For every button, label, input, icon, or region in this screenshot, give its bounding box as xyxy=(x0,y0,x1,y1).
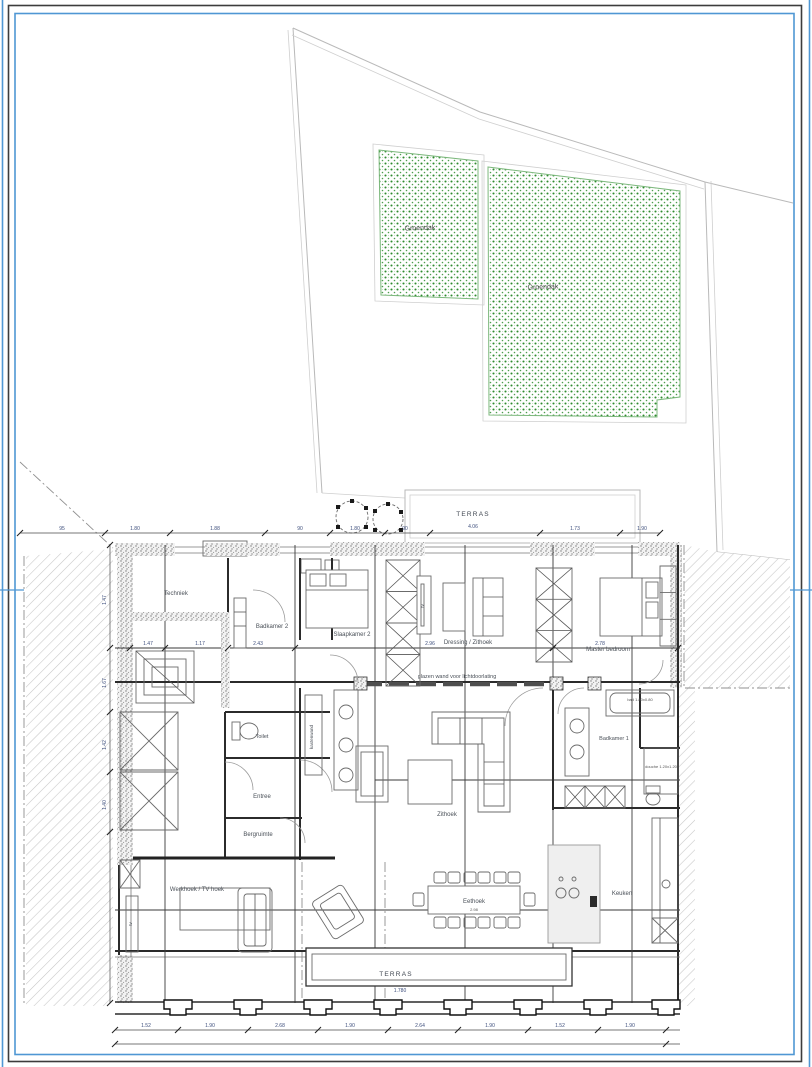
toilet-wc xyxy=(232,722,258,740)
stair-wall xyxy=(221,612,230,708)
terrace-top-outline xyxy=(405,490,640,543)
stairs xyxy=(136,651,194,703)
bath-dim-label: bad 1.80x0.80 xyxy=(627,697,653,702)
dim-bottom: 1.52 xyxy=(555,1023,565,1029)
glass-wall-label: glazen wand voor lichtdoorlating xyxy=(418,674,497,680)
dim-left: 1.42 xyxy=(102,740,108,750)
floor-plan-drawing: Groendak Groendak TERRAS 4.06 xyxy=(0,0,812,1067)
column xyxy=(354,677,367,690)
tv-label: tv xyxy=(128,922,133,926)
terrace-bottom-dim: 1.780 xyxy=(394,988,407,994)
dim-middle: 1.17 xyxy=(195,641,205,647)
green-roof-small-label: Groendak xyxy=(404,224,435,232)
vanity-badkamer1 xyxy=(565,708,589,776)
room-label-entree: Entree xyxy=(253,794,271,800)
dim-middle: 2.43 xyxy=(253,641,263,647)
skylight-dome-icon xyxy=(373,504,403,534)
room-label-keuken: Keuken xyxy=(612,891,632,897)
hatch-right-upper xyxy=(684,545,790,688)
column xyxy=(550,677,563,690)
wall-segment xyxy=(530,542,595,556)
drawing-page: Groendak Groendak TERRAS 4.06 xyxy=(0,0,812,1067)
skylight-studs xyxy=(336,499,403,532)
wall-segment xyxy=(205,543,280,556)
tv-cabinet-dressing: tv xyxy=(417,576,431,634)
wardrobe-column xyxy=(386,560,420,686)
dim-top: 90 xyxy=(297,526,303,532)
dim-bottom: 2.64 xyxy=(415,1023,425,1029)
radiator xyxy=(234,598,246,648)
chaise-sofa xyxy=(473,578,503,636)
room-label-dressing: Dressing / Zithoek xyxy=(444,640,493,646)
dressing-table xyxy=(443,583,465,631)
eethoek-dim: 2.98 xyxy=(470,907,479,912)
stair-wall xyxy=(120,612,230,621)
furniture-werkhoek: tv xyxy=(120,860,365,952)
eethoek-label: Eethoek xyxy=(463,899,486,905)
dim-top: 1.73 xyxy=(570,526,580,532)
room-label-toilet: Toilet xyxy=(256,734,269,740)
dim-top: 1.80 xyxy=(350,526,360,532)
sofa-werkhoek xyxy=(238,888,272,952)
wall-segment xyxy=(117,955,133,1003)
dim-left: 1.47 xyxy=(102,595,108,605)
kitchen-counter xyxy=(652,818,678,943)
hatch-right-wall xyxy=(678,688,695,1006)
bed-slaapkamer2 xyxy=(306,570,368,628)
dim-bottom: 1.90 xyxy=(205,1023,215,1029)
shower-dim-label: douche 1.20x1.20 xyxy=(645,764,678,769)
dim-bottom: 1.52 xyxy=(141,1023,151,1029)
furniture-living: Eethoek 2.98 xyxy=(356,712,678,943)
tv-unit-werkhoek: tv xyxy=(126,896,138,952)
wc-badkamer1 xyxy=(646,786,660,805)
dim-top: 1.90 xyxy=(637,526,647,532)
cooktop xyxy=(590,896,597,907)
dim-left: 1.67 xyxy=(102,678,108,688)
dim-middle: 1.47 xyxy=(143,641,153,647)
room-label-bergruimte: Bergruimte xyxy=(243,832,273,838)
dim-top: 90 xyxy=(402,526,408,532)
cabinet-row xyxy=(565,786,625,808)
shower: douche 1.20x1.20 xyxy=(644,748,678,794)
wall-left xyxy=(117,545,133,865)
room-label-zithoek: Zithoek xyxy=(437,812,458,818)
furniture-bedrooms: tv xyxy=(306,560,676,686)
room-label-master-bedroom: Master bedroom xyxy=(586,647,630,653)
kastenwand-label: kastenwand xyxy=(309,725,314,750)
room-label-slaapkamer2: Slaapkamer 2 xyxy=(333,632,371,638)
armchair-rotated xyxy=(311,884,365,940)
dim-top: 1.88 xyxy=(210,526,220,532)
coffee-table xyxy=(408,760,452,804)
green-roofs: Groendak Groendak xyxy=(379,150,680,417)
armchair xyxy=(356,746,388,802)
dim-bottom: 1.90 xyxy=(625,1023,635,1029)
dim-left: 1.40 xyxy=(102,800,108,810)
washbasin-unit xyxy=(334,690,358,790)
dining-table-set: Eethoek 2.98 xyxy=(413,872,535,928)
room-label-badkamer2: Badkamer 2 xyxy=(256,624,289,630)
hatch-left xyxy=(26,549,113,1006)
room-label-badkamer1: Badkamer 1 xyxy=(599,736,629,742)
terrace-bottom: TERRAS 1.780 xyxy=(115,948,680,1015)
bed-master xyxy=(600,578,662,636)
green-roof-large-label: Groendak xyxy=(527,283,558,291)
dim-bottom: 1.90 xyxy=(345,1023,355,1029)
wall-segment xyxy=(330,542,425,556)
dim-bottom: 2.68 xyxy=(275,1023,285,1029)
dim-middle: 2.96 xyxy=(425,641,435,647)
column xyxy=(588,677,601,690)
dim-top: 95 xyxy=(59,526,65,532)
terrace-top-dim: 4.06 xyxy=(468,524,478,530)
dim-bottom: 1.90 xyxy=(485,1023,495,1029)
interior-walls xyxy=(115,558,680,860)
terrace-top-inner xyxy=(410,495,635,538)
green-roof-large xyxy=(488,167,680,417)
terrace-top-label: TERRAS xyxy=(456,511,490,518)
terrace-bottom-label: TERRAS xyxy=(379,971,413,978)
room-label-techniek: Techniek xyxy=(164,591,189,597)
dim-top: 1.80 xyxy=(130,526,140,532)
kitchen-island xyxy=(548,845,600,943)
room-label-werkhoek: Werkhoek / TV hoek xyxy=(170,887,225,893)
